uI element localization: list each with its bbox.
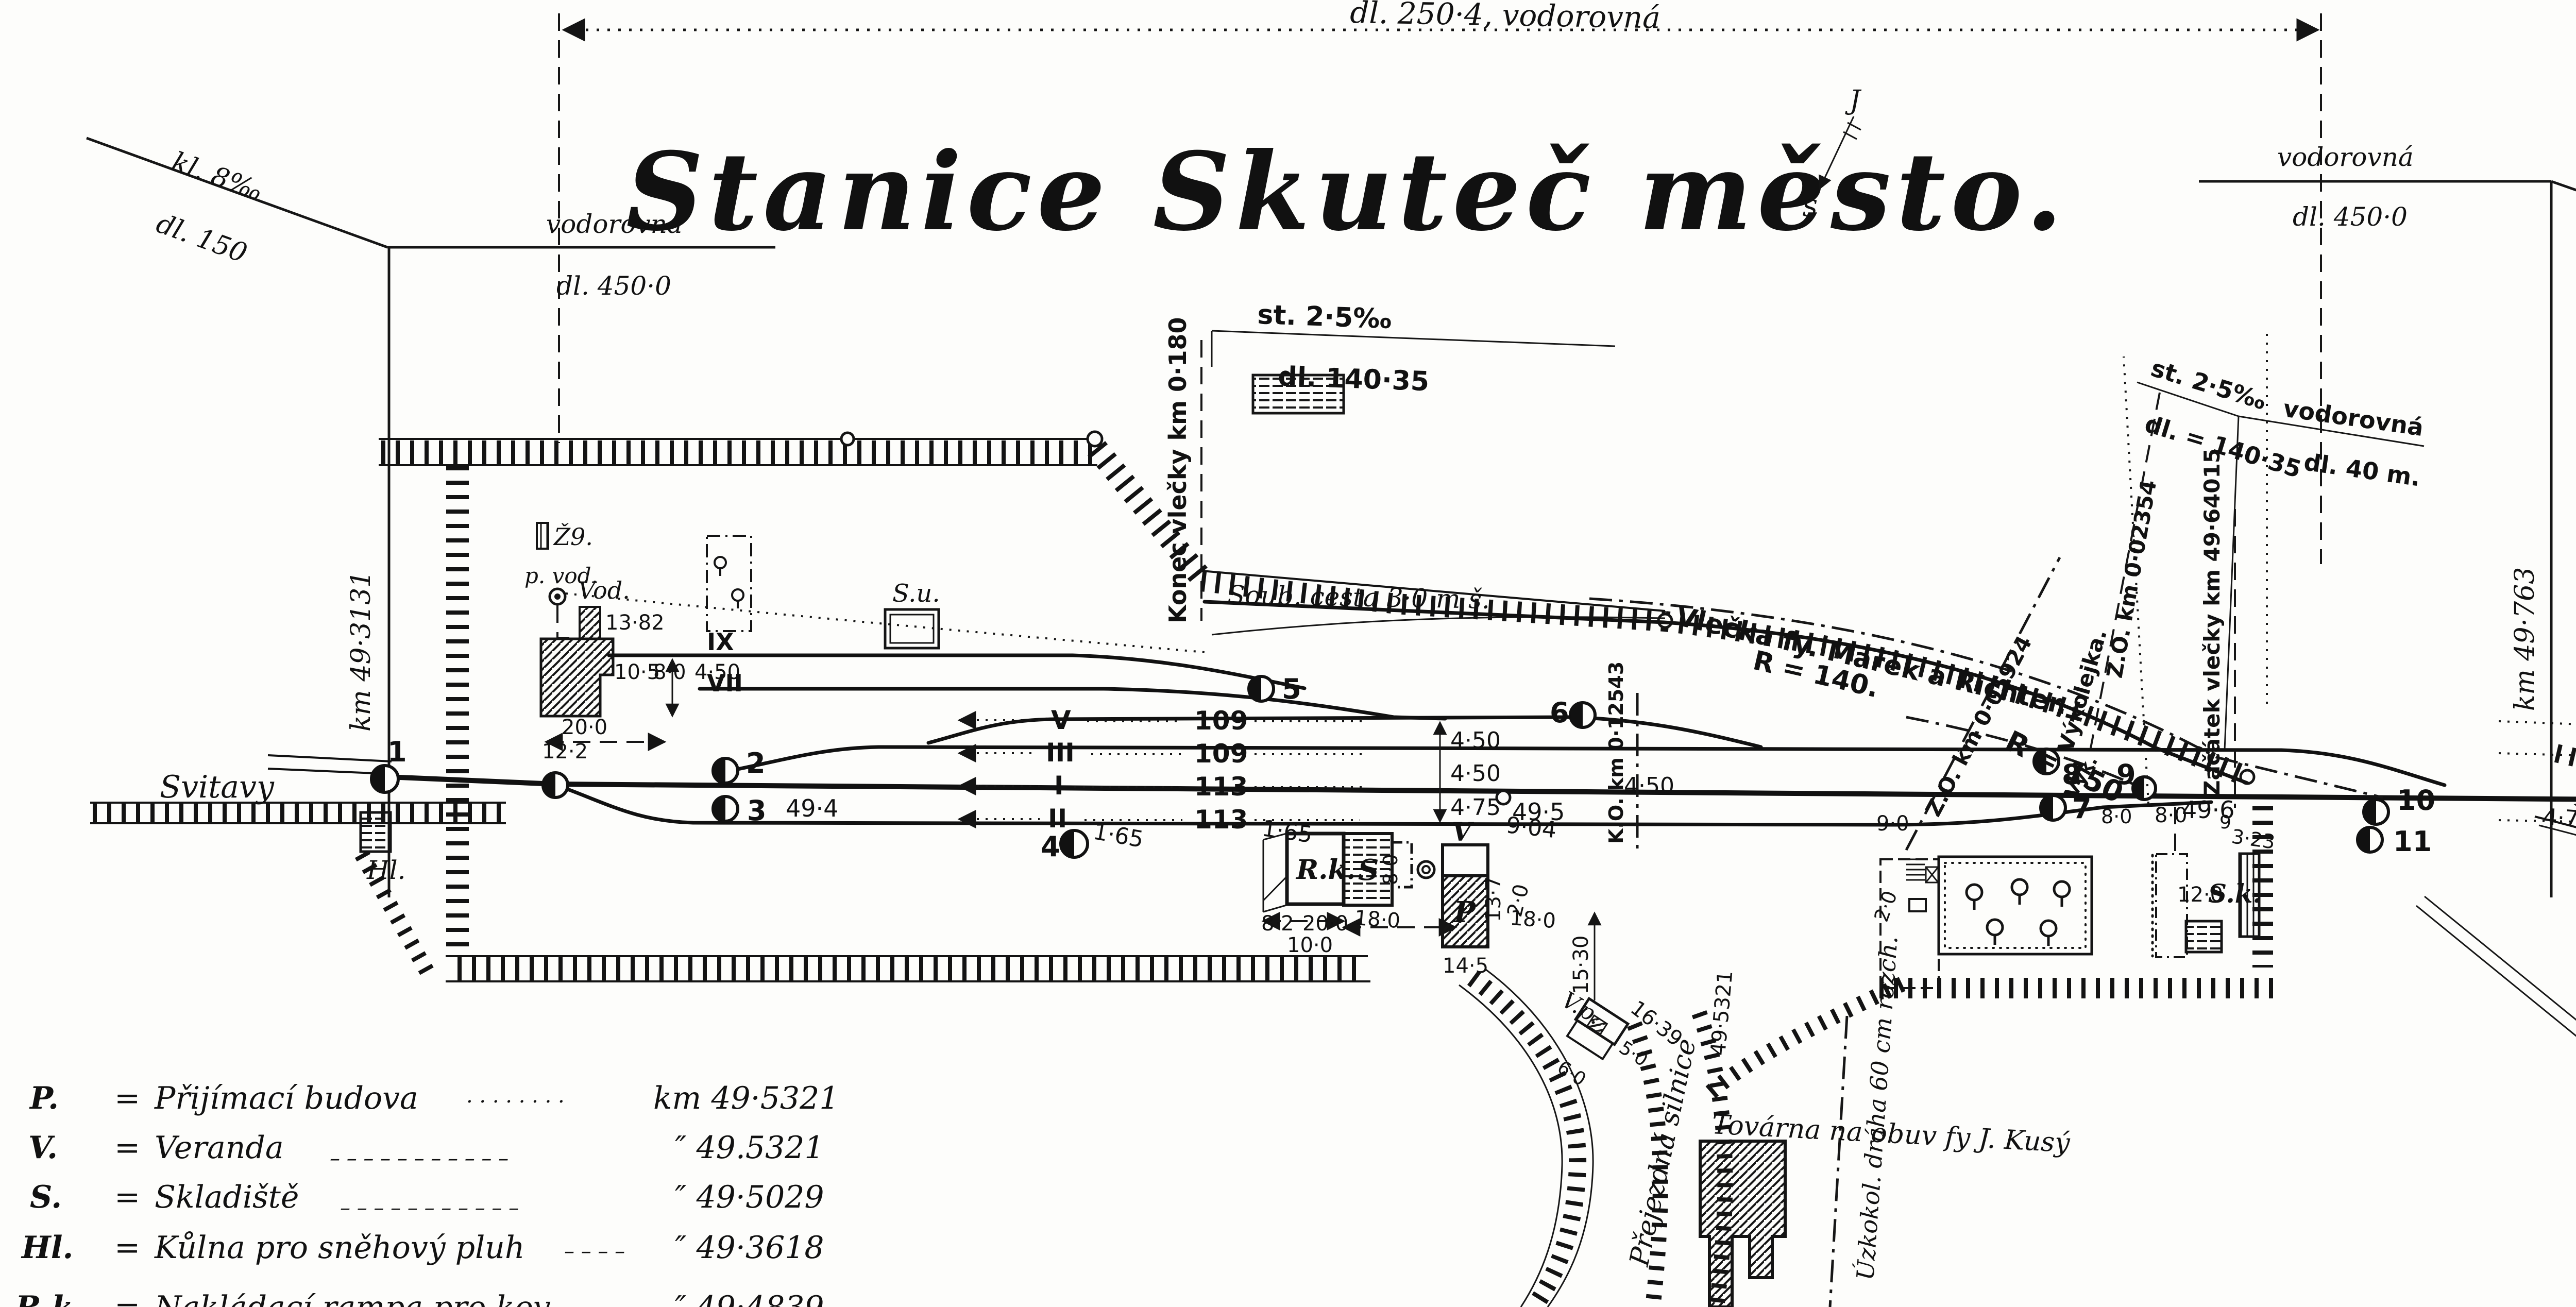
plan-drawing: Stanice Skuteč město. dl. 250·4, vodorov… <box>0 0 2576 1307</box>
svg-text:=: = <box>114 1080 140 1116</box>
su-label: S.u. <box>892 579 940 608</box>
svg-text:=: = <box>114 1179 140 1215</box>
switch-symbol <box>2358 827 2382 852</box>
dim-80-c: 8·0 <box>1379 854 1402 885</box>
dim-450-d: 4·50 <box>694 660 740 684</box>
dim-80-d: 8·0 <box>2101 805 2132 828</box>
gradient-profile-right: vodorovná dl. 450·0 kl. 10‰ dl. 300 km 4… <box>2199 142 2576 897</box>
sk-area: S.k. 12·0 3·23 <box>2153 825 2277 957</box>
km-495321: 49·5321 <box>1706 970 1737 1057</box>
svitavy-label: Svitavy <box>160 769 275 805</box>
svg-text:– – – – – – – – – – –: – – – – – – – – – – – <box>330 1147 509 1170</box>
uzkokolejka-label: Úzkokol. dráha 60 cm rozch. <box>1851 935 1903 1281</box>
right-garden: 2·0 9·0 8·0 <box>1870 805 2132 988</box>
garden-plot <box>707 536 751 631</box>
garden-fence <box>1939 857 2092 954</box>
switch-symbol <box>1249 676 1274 701</box>
factory-building <box>1700 1141 1785 1307</box>
station-plan-scan: Stanice Skuteč město. dl. 250·4, vodorov… <box>0 0 2576 1307</box>
track-i-length: 113 <box>1194 772 1248 802</box>
p-label: P <box>1453 895 1477 929</box>
track-iii-length: 109 <box>1194 739 1248 769</box>
grade-mid-right: st. 2·5‰ dl. = 140·35 vodorovná dl. 40 m… <box>2137 334 2426 750</box>
dim-80-b: 8·0 <box>2155 804 2188 827</box>
zacatek-vlecky-label: Začátek vlečky km 49·64015 <box>2199 448 2225 796</box>
legend-name: Kůlna pro sněhový pluh <box>154 1230 525 1266</box>
dim-200-a: 20·0 <box>562 716 607 739</box>
dim-120: 12·0 <box>2177 883 2223 907</box>
switch-6-label: 6 <box>1550 697 1569 729</box>
hl-building <box>361 812 391 852</box>
switch-symbol <box>2133 777 2156 800</box>
loading-ramp <box>2240 854 2259 937</box>
svg-text:– – – – – – – – – – –: – – – – – – – – – – – <box>340 1196 519 1220</box>
dim-137: 13·7 <box>1482 876 1505 922</box>
dim-80-a: 8·0 <box>653 660 686 684</box>
switch-symbol <box>2364 800 2388 824</box>
track-v-label: V <box>1051 705 1071 735</box>
s-label: S <box>1358 853 1379 887</box>
legend-km: km 49·5321 <box>653 1080 839 1116</box>
tree-icon <box>732 589 743 608</box>
legend-abbr: Hl. <box>21 1230 73 1266</box>
track-v-length: 109 <box>1194 706 1248 736</box>
zo2-label: Z.O. km 0·02354 <box>2102 478 2162 680</box>
svg-text:=: = <box>114 1289 140 1307</box>
dim-145: 14·5 <box>1443 954 1488 978</box>
tree-icon <box>2012 879 2027 905</box>
track-vii-line <box>700 689 1445 719</box>
legend-name: Skladiště <box>155 1179 299 1215</box>
track-ix-label: IX <box>707 628 734 656</box>
switch-5-label: 5 <box>1282 673 1301 705</box>
z9-building <box>537 523 548 549</box>
tree-icon <box>1987 920 2003 945</box>
legend-name: Přijímací budova <box>154 1080 418 1116</box>
dim-20-b: 2·0 <box>1870 888 1902 925</box>
grade-left-vodorovna-label: vodorovná <box>546 209 683 239</box>
veranda-label: V <box>1452 817 1475 847</box>
km-495: 49·5 <box>1512 798 1565 826</box>
switch-symbol <box>1570 703 1595 727</box>
legend-km: ″ 49·3618 <box>675 1230 824 1266</box>
dim-1530: 15·30 <box>1569 935 1593 994</box>
tree-icon <box>1967 885 1982 910</box>
dim-180-a: 18·0 <box>1353 906 1401 933</box>
dim-100: 10·0 <box>1287 933 1333 957</box>
sk-building <box>2186 921 2222 952</box>
veranda-building <box>1443 845 1488 876</box>
grade-mid-st-label: st. 2·5‰ <box>1257 299 1393 335</box>
legend-abbr: R.k. <box>14 1289 84 1307</box>
hl-label: Hl. <box>366 855 406 885</box>
legend-name: Nakládací rampa pro kov <box>154 1289 551 1307</box>
grade-left-km-label: km 49·3131 <box>346 571 377 732</box>
vod-label: Vod. <box>578 576 630 604</box>
grade-right-dl450-label: dl. 450·0 <box>2293 202 2408 232</box>
switch-symbol <box>2041 795 2065 820</box>
legend-name: Veranda <box>155 1130 284 1166</box>
dim-1382: 13·82 <box>605 611 665 635</box>
svg-text:=: = <box>114 1230 140 1266</box>
km-494: 49·4 <box>786 794 838 822</box>
switch-10-label: 10 <box>2397 784 2435 817</box>
prejezdna-silnice-label: Přejezdná silnice <box>1624 1036 1702 1269</box>
switch-2-label: 2 <box>746 747 766 779</box>
switch-symbol <box>1061 830 1088 857</box>
grade-right-km-label: km 49·763 <box>2510 567 2540 711</box>
roads: Soub. cesta 3·0 m š. Přejezdná silnice Ú… <box>1212 580 2576 1307</box>
switch-1-label: 1 <box>387 736 407 768</box>
legend-row: S. = Skladiště – – – – – – – – – – – ″ 4… <box>30 1179 824 1220</box>
track-labels: V 109 III 109 I 113 II 113 IX VII <box>707 628 2576 835</box>
legend-row: V. = Veranda – – – – – – – – – – – ″ 49.… <box>28 1130 824 1170</box>
grade-right-vodorovna-label: vodorovná <box>2277 142 2414 172</box>
vod-building <box>580 607 600 639</box>
z9-label: Ž9. <box>553 522 593 551</box>
grade-mid-left: st. 2·5‰ dl. 140·35 <box>1212 299 1615 413</box>
ballast-box <box>1253 375 1344 413</box>
switches: 1 2 3 4 5 6 7 8 9 10 11 <box>371 673 2435 863</box>
dim-200-b: 20·0 <box>1302 912 1348 936</box>
svg-text:=: = <box>114 1130 140 1166</box>
konec-vlecky-label: Konec vlečky km 0·180 <box>1164 317 1192 623</box>
dim-450-b: 4·50 <box>1450 760 1501 787</box>
dim-450-c: 4·50 <box>1624 773 1674 799</box>
grade-dl150-label: dl. 150 <box>152 208 251 269</box>
track-i-label: I <box>1054 771 1064 801</box>
switch-11-label: 11 <box>2393 825 2432 858</box>
track-iii-label: III <box>1046 738 1075 768</box>
track-ii-length: 113 <box>1194 805 1248 835</box>
compass-s-label: S <box>1802 196 1818 222</box>
compass-j-label: J <box>1845 85 1862 116</box>
track-ii-label: II <box>1048 804 1067 834</box>
top-dimension-label: dl. 250·4, vodorovná <box>1350 0 1661 36</box>
km-496-sub: 9 <box>2219 812 2231 833</box>
legend-row: Hl. = Kůlna pro sněhový pluh – – – – ″ 4… <box>21 1230 824 1266</box>
switch-4-label: 4 <box>1041 830 1060 863</box>
dim-90-b: 9·0 <box>1876 812 1909 836</box>
dim-475-b: 4·75 <box>2542 804 2576 834</box>
legend-km: ″ 49.5321 <box>675 1130 824 1166</box>
dim-450-a: 4·50 <box>1450 727 1501 754</box>
legend-abbr: S. <box>30 1179 62 1215</box>
track-iii-line <box>727 747 2445 785</box>
dim-82: 8·2 <box>1261 912 1294 936</box>
switch-symbol <box>371 766 398 792</box>
grade-left-dl450-label: dl. 450·0 <box>556 271 671 301</box>
top-dimension: dl. 250·4, vodorovná <box>559 0 2321 564</box>
dim-323: 3·23 <box>2230 825 2277 853</box>
dim-122: 12·2 <box>542 740 588 763</box>
switch-symbol <box>713 796 738 821</box>
grade-kl8-label: kl. 8‰ <box>168 146 267 208</box>
switch-symbol <box>713 758 738 783</box>
tree-icon <box>715 557 726 576</box>
factory <box>1700 1141 1785 1307</box>
svg-text:– – – –: – – – – <box>564 1240 625 1263</box>
svg-text:· · · · · · · ·: · · · · · · · · <box>466 1090 565 1114</box>
old-building-hatched <box>541 639 613 716</box>
legend: P. = Přijímací budova · · · · · · · · km… <box>14 1080 839 1307</box>
legend-abbr: V. <box>28 1130 58 1166</box>
legend-abbr: P. <box>29 1080 59 1116</box>
legend-row: P. = Přijímací budova · · · · · · · · km… <box>29 1080 839 1116</box>
switch-symbol <box>543 773 568 797</box>
legend-row: R.k. = Nakládací rampa pro kov ″ 49·4839 <box>14 1289 824 1307</box>
switch-3-label: 3 <box>747 794 767 827</box>
legend-km: ″ 49·5029 <box>675 1179 824 1215</box>
legend-km: ″ 49·4839 <box>675 1289 824 1307</box>
ko-km-label: K.O. km 0·12543 <box>1605 661 1628 844</box>
tree-icon <box>2041 921 2056 946</box>
tree-icon <box>2054 881 2070 907</box>
page-title: Stanice Skuteč město. <box>626 129 2068 255</box>
